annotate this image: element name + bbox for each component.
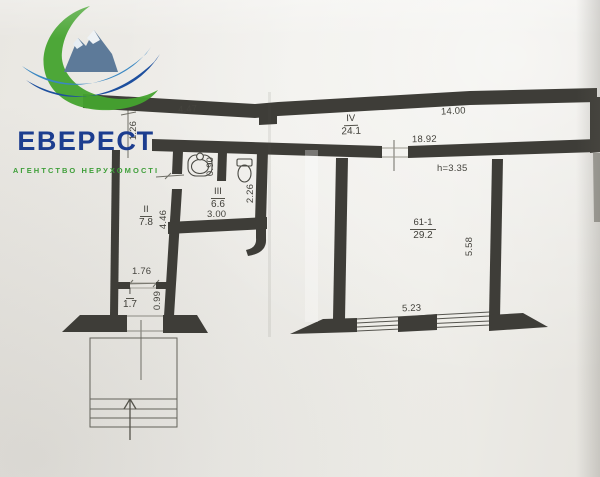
dim-bath-partition: 0.90: [205, 157, 216, 176]
corridor-door-opening: [382, 148, 408, 157]
dim-hall-width: 1.76: [132, 266, 151, 277]
room-area: 1.7: [115, 299, 145, 311]
room-number: IV: [343, 114, 358, 126]
scanned-floor-plan-photo: 4.47 14.00 1.26 18.92 h=3.35 0.90 2.26 3…: [0, 0, 600, 477]
dim-top-right: 14.00: [441, 105, 466, 117]
paper-fold-highlight: [305, 150, 318, 322]
room-label-room2: II 7.8: [131, 205, 161, 228]
staircase: [90, 338, 177, 427]
stairs-up-arrow-icon: [124, 399, 136, 440]
dim-bath-width: 3.00: [207, 209, 226, 220]
room-number: 61-1: [410, 218, 435, 230]
logo-mountain-icon: [20, 2, 168, 124]
room-area: 6.6: [203, 199, 233, 211]
dim-main-room-depth: 5.58: [464, 237, 475, 256]
logo-title: ЕВЕРЕСТ: [6, 126, 166, 157]
balcony-opening: [127, 316, 163, 331]
room-number: I: [126, 287, 135, 299]
room-area: 24.1: [336, 125, 366, 138]
room-number: II: [140, 205, 151, 217]
room-label-corridor: IV 24.1: [336, 113, 367, 138]
paper-crease: [268, 92, 271, 337]
room-area: 7.8: [131, 217, 161, 229]
dim-top-left: 4.47: [178, 103, 198, 115]
dim-main-room-width: 5.23: [402, 303, 422, 315]
logo-subtitle: АГЕНТСТВО НЕРУХОМОСТІ: [10, 166, 162, 175]
dim-corridor-door: 18.92: [412, 134, 437, 145]
room-label-bathroom: III 6.6: [203, 187, 233, 210]
room-area: 29.2: [402, 230, 444, 242]
room-number: III: [211, 187, 225, 199]
dim-bath-depth: 2.26: [245, 184, 256, 203]
toilet-icon: [237, 159, 252, 182]
agency-logo: ЕВЕРЕСТ АГЕНТСТВО НЕРУХОМОСТІ: [0, 0, 180, 190]
room-label-main-room: 61-1 29.2: [402, 218, 444, 241]
dim-ceiling-height: h=3.35: [437, 163, 468, 174]
dim-hall-depth: 0.99: [152, 291, 163, 310]
room-label-hall: I 1.7: [115, 287, 145, 310]
